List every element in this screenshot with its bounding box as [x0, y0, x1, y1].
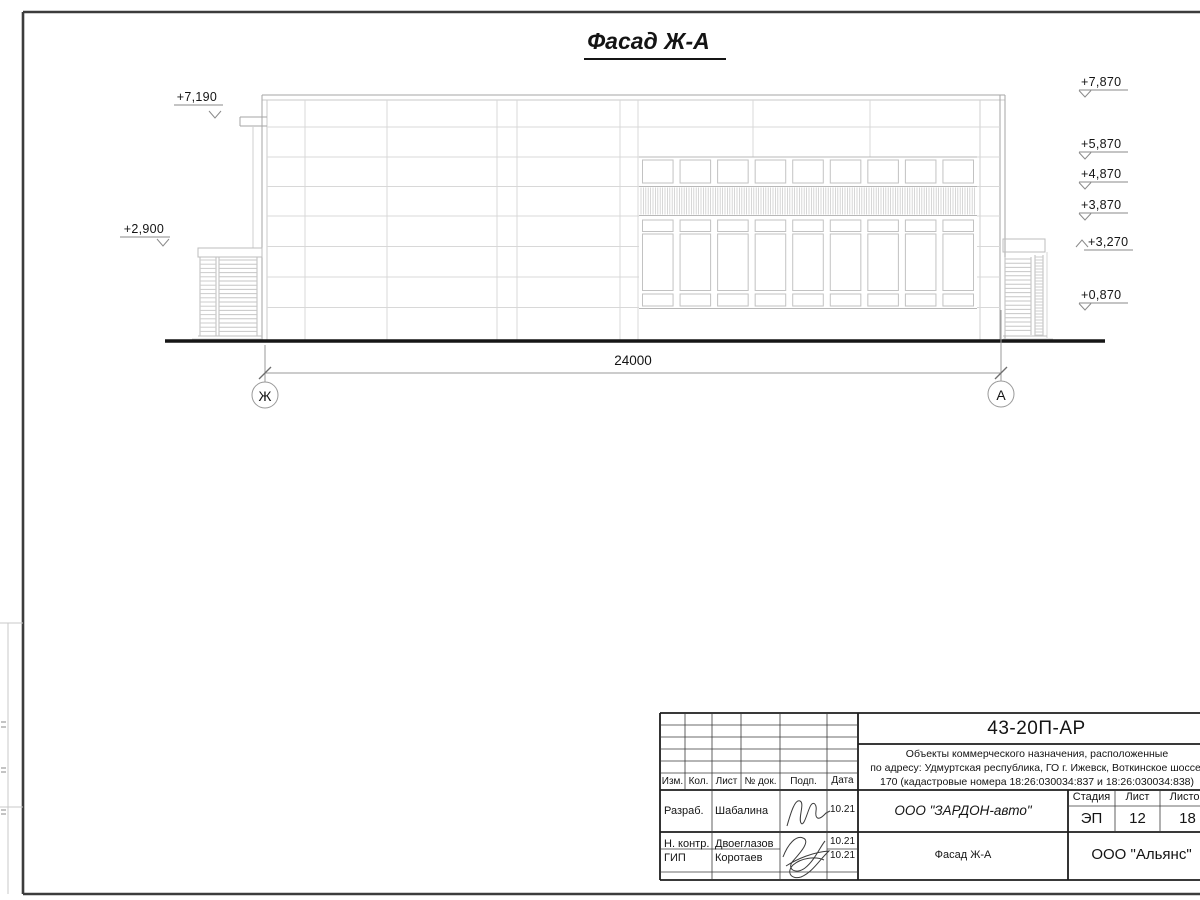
- tb-sheet-value: 12: [1115, 810, 1160, 827]
- tb-name-nkontr: Двоеглазов: [715, 838, 773, 850]
- left-margin-table: [0, 623, 23, 894]
- elevation-label-right-1: +7,870: [1081, 75, 1121, 89]
- tb-role-razrab: Разраб.: [664, 805, 704, 817]
- drawing-title: Фасад Ж-А: [540, 28, 770, 60]
- tb-project-line1: Объекты коммерческого назначения, распол…: [862, 747, 1200, 761]
- tb-project-description: Объекты коммерческого назначения, распол…: [862, 747, 1200, 789]
- elevation-label-right-3: +4,870: [1081, 167, 1121, 181]
- dimension-text: 24000: [593, 353, 673, 368]
- signature-scribbles: [783, 801, 830, 878]
- axis-bubble-left-label: Ж: [250, 388, 280, 404]
- drawing-title-text: Фасад Ж-А: [584, 28, 726, 60]
- tb-developer: ООО "ЗАРДОН-авто": [858, 803, 1068, 818]
- drawing-sheet: Фасад Ж-А +7,190 +2,900 +7,870 +5,870 +4…: [0, 0, 1200, 900]
- louver-grille-hatch: [641, 188, 975, 215]
- elevation-label-left-2: +2,900: [118, 222, 170, 236]
- tb-stage-label: Стадия: [1068, 791, 1115, 803]
- tb-doc-number: 43-20П-АР: [858, 718, 1200, 740]
- tb-project-line2: по адресу: Удмуртская республика, ГО г. …: [862, 761, 1200, 775]
- tb-project-line3: 170 (кадастровые номера 18:26:030034:837…: [862, 775, 1200, 789]
- tb-view-title: Фасад Ж-А: [858, 849, 1068, 861]
- tb-date-nkontr: 10.21: [827, 836, 858, 847]
- tb-name-razrab: Шабалина: [715, 805, 768, 817]
- right-louver-block: [1003, 239, 1053, 339]
- tb-col-doc: № док.: [741, 776, 780, 787]
- tb-name-gip: Коротаев: [715, 852, 763, 864]
- tb-sheets-value: 18: [1160, 810, 1200, 827]
- tb-col-kol: Кол.: [685, 776, 712, 787]
- tb-date-gip: 10.21: [827, 850, 858, 861]
- elevation-label-right-2: +5,870: [1081, 137, 1121, 151]
- left-louver-block: [192, 248, 262, 339]
- elevation-label-left-1: +7,190: [171, 90, 223, 104]
- facade-outline: [240, 95, 1047, 341]
- tb-date-razrab: 10.21: [827, 804, 858, 815]
- tb-organization: ООО "Альянс": [1068, 846, 1200, 863]
- elevation-label-right-4: +3,870: [1081, 198, 1121, 212]
- tb-stage-value: ЭП: [1068, 810, 1115, 827]
- window-grid: [643, 160, 974, 306]
- window-band-edges: [639, 157, 977, 309]
- signature-shabalina: [787, 801, 830, 826]
- tb-col-podp: Подп.: [780, 776, 827, 787]
- tb-role-nkontr: Н. контр.: [664, 838, 709, 850]
- tb-sheets-label: Листов: [1160, 791, 1200, 803]
- tb-sheet-label: Лист: [1115, 791, 1160, 803]
- tb-role-gip: ГИП: [664, 852, 686, 864]
- elevation-label-right-5: +3,270: [1088, 235, 1128, 249]
- axis-bubble-right-label: А: [986, 387, 1016, 403]
- tb-col-data: Дата: [827, 775, 858, 786]
- elevation-label-right-6: +0,870: [1081, 288, 1121, 302]
- tb-col-izm: Изм.: [660, 776, 685, 787]
- tb-col-list: Лист: [712, 776, 741, 787]
